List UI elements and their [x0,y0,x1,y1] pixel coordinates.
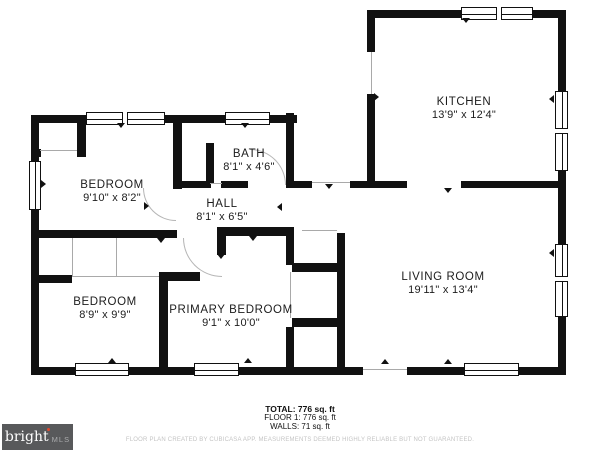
window [555,244,568,317]
wall [337,233,345,375]
window [86,112,165,125]
opening-marker-icon [549,249,554,257]
room-dimensions: 8'1" x 4'6" [154,161,344,174]
door-line [210,183,222,184]
room-name: BEDROOM [17,179,207,192]
room-name: BATH [154,148,344,161]
room-name: PRIMARY BEDROOM [136,304,326,317]
opening-marker-icon [108,358,116,363]
bright-mls-logo: bright MLS [2,424,73,450]
wall [286,230,294,265]
room-dimensions: 8'1" x 6'5" [127,211,317,224]
floor-plan-page: KITCHEN13'9" x 12'4"BATH8'1" x 4'6"HALL8… [0,0,600,450]
opening-marker-icon [157,238,165,243]
disclaimer-text: FLOOR PLAN CREATED BY CUBICASA APP. MEAS… [0,437,600,443]
wall [367,10,375,52]
window-mullion [496,7,502,20]
window-pane-line [465,370,518,371]
door-line [312,182,350,183]
opening-marker-icon [381,359,389,364]
walls-area-text: WALLS: 71 sq. ft [0,423,600,432]
opening-marker-icon [462,18,470,23]
wall [217,227,226,255]
wall [217,227,294,236]
wall [292,263,337,272]
window [75,363,129,376]
door-line [371,52,372,94]
room-dimensions: 9'1" x 10'0" [136,317,326,330]
room-dimensions: 9'10" x 8'2" [17,192,207,205]
wall [286,181,312,188]
opening-marker-icon [444,188,452,193]
wall [558,10,566,375]
window-mullion [555,276,568,282]
wall [31,230,177,238]
opening-marker-icon [325,184,333,189]
door-line [40,150,77,151]
wall [159,272,200,281]
door-line [363,369,407,370]
room-name: KITCHEN [369,96,559,109]
opening-marker-icon [241,123,249,128]
wall [31,275,72,283]
opening-marker-icon [117,123,125,128]
door-line [302,230,337,231]
room-dimensions: 19'11" x 13'4" [348,284,538,297]
window-pane-line [226,119,269,120]
floor-plan-canvas: KITCHEN13'9" x 12'4"BATH8'1" x 4'6"HALL8… [0,0,600,450]
door-line [116,238,117,277]
wall [286,327,294,375]
opening-marker-icon [444,359,452,364]
door-line [72,238,73,276]
room-label-bath: BATH8'1" x 4'6" [154,148,344,174]
opening-marker-icon [217,254,225,259]
opening-marker-icon [249,236,257,241]
wall [461,181,566,188]
window [194,363,239,376]
bright-mls-logo-suffix: MLS [52,435,70,444]
room-label-primary-bedroom: PRIMARY BEDROOM9'1" x 10'0" [136,304,326,330]
room-label-bedroom-1: BEDROOM9'10" x 8'2" [17,179,207,205]
room-label-living-room: LIVING ROOM19'11" x 13'4" [348,271,538,297]
window-mullion [555,128,568,134]
window-pane-line [195,370,238,371]
room-name: LIVING ROOM [348,271,538,284]
window [461,7,533,20]
wall [350,181,407,188]
bright-mls-logo-brand: bright [5,430,49,444]
room-label-kitchen: KITCHEN13'9" x 12'4" [369,96,559,122]
wall [77,122,86,157]
opening-marker-icon [244,358,252,363]
logo-flame-dot-icon [47,428,50,431]
room-dimensions: 13'9" x 12'4" [369,109,559,122]
wall [221,181,248,188]
plan-summary: TOTAL: 776 sq. ft FLOOR 1: 776 sq. ft WA… [0,405,600,443]
window [464,363,519,376]
window-pane-line [76,370,128,371]
